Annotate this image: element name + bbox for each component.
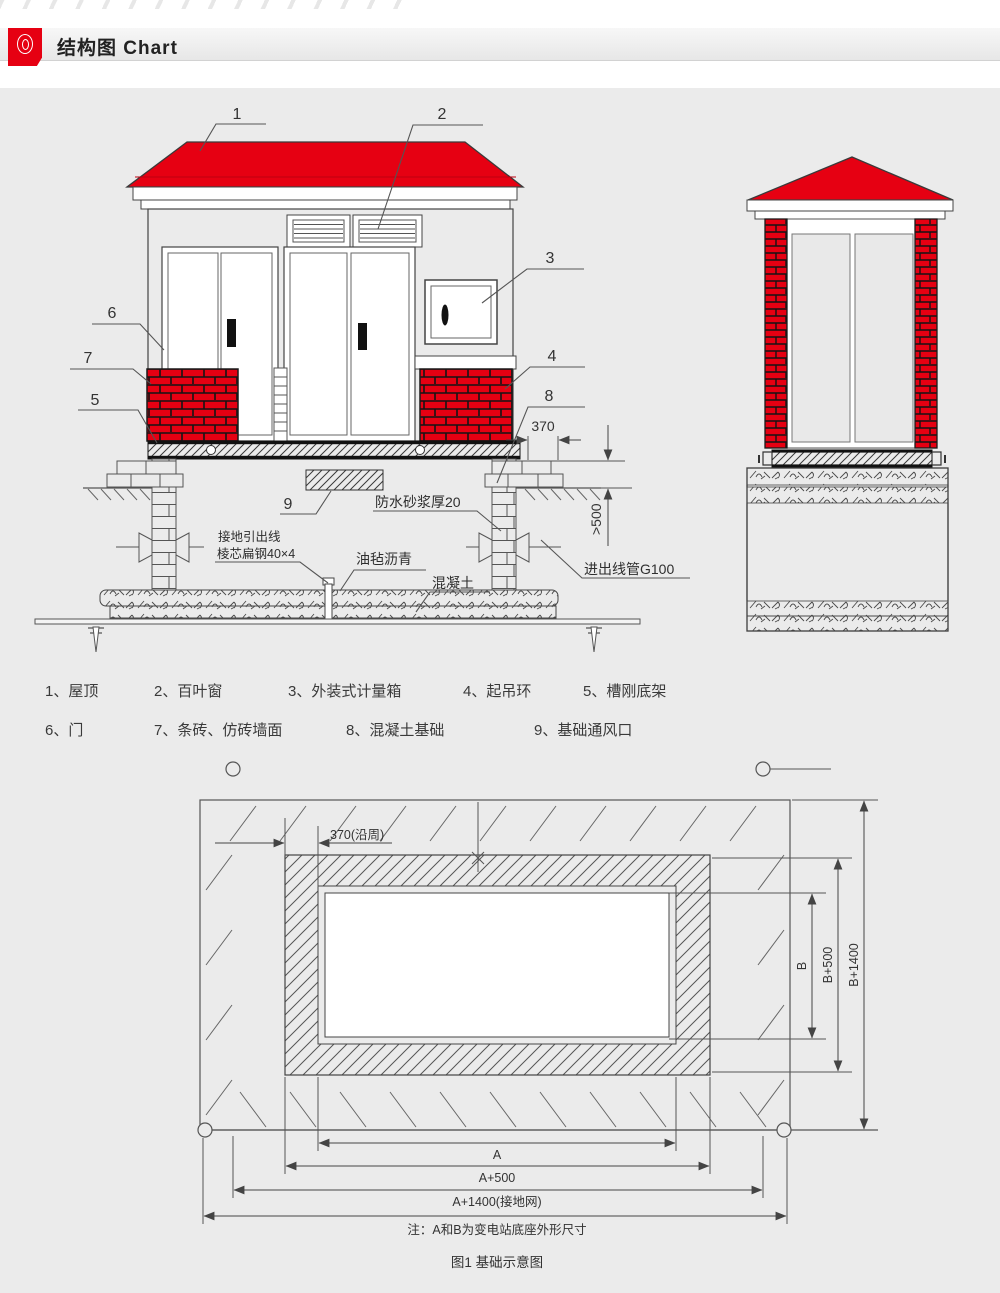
brick-panel-left bbox=[147, 369, 238, 441]
brick-column-left bbox=[765, 219, 787, 448]
svg-text:B+1400: B+1400 bbox=[847, 943, 861, 986]
earth-rod-right bbox=[586, 627, 602, 652]
dim-a500: A+500 bbox=[285, 1077, 710, 1185]
svg-text:A+1400(接地网): A+1400(接地网) bbox=[452, 1194, 541, 1209]
label-conduit: 进出线管G100 bbox=[584, 561, 674, 577]
foundation-vent bbox=[306, 470, 383, 490]
legend: 1、屋顶 2、百叶窗 3、外装式计量箱 4、起吊环 5、槽刚底架 6、门 7、条… bbox=[45, 682, 666, 739]
side-roof bbox=[748, 157, 953, 200]
dim-b500: B+500 bbox=[712, 858, 852, 1072]
callout-8: 8 bbox=[545, 388, 554, 405]
roof bbox=[127, 142, 523, 187]
window-sill bbox=[415, 356, 516, 369]
page: 结构图 Chart bbox=[0, 0, 1000, 1293]
side-panel bbox=[855, 234, 913, 442]
callout-6: 6 bbox=[108, 305, 117, 322]
grounding-strip bbox=[323, 578, 334, 622]
legend-item: 3、外装式计量箱 bbox=[288, 683, 401, 700]
earth-electrode bbox=[198, 1123, 212, 1137]
side-panel bbox=[792, 234, 850, 442]
callout-5: 5 bbox=[91, 392, 100, 409]
legend-item: 2、百叶窗 bbox=[154, 682, 222, 700]
figure-caption: 图1 基础示意图 bbox=[451, 1254, 543, 1270]
ground-bar bbox=[35, 619, 640, 624]
lifting-ring bbox=[207, 446, 216, 455]
callout-3: 3 bbox=[546, 250, 555, 267]
base-outline bbox=[325, 893, 669, 1037]
door-middle bbox=[284, 247, 415, 441]
svg-text:B+500: B+500 bbox=[821, 947, 835, 984]
dim-a: A bbox=[318, 1077, 676, 1162]
side-elevation bbox=[747, 157, 953, 631]
earth-rod-left bbox=[88, 627, 104, 652]
footing-right bbox=[485, 461, 563, 487]
label-grounding-1: 接地引出线 bbox=[218, 529, 281, 544]
callout-1: 1 bbox=[233, 106, 242, 123]
svg-text:B: B bbox=[795, 962, 809, 970]
legend-item: 6、门 bbox=[45, 722, 83, 739]
callout-4: 4 bbox=[548, 348, 557, 365]
door-handle bbox=[358, 323, 367, 350]
door-handle bbox=[227, 319, 236, 347]
svg-text:370(沿周): 370(沿周) bbox=[330, 828, 384, 842]
brick-column-right bbox=[915, 219, 937, 448]
earth-electrode bbox=[226, 762, 240, 776]
vent-strip bbox=[274, 368, 287, 441]
svg-text:A+500: A+500 bbox=[479, 1171, 516, 1185]
label-waterproof: 防水砂浆厚20 bbox=[375, 494, 461, 510]
label-grounding-2: 棱芯扁钢40×4 bbox=[217, 546, 295, 561]
svg-text:370: 370 bbox=[531, 418, 555, 434]
legend-item: 4、起吊环 bbox=[463, 683, 531, 700]
svg-text:>500: >500 bbox=[588, 503, 604, 535]
side-base-frame bbox=[759, 450, 945, 467]
label-concrete: 混凝土 bbox=[432, 575, 474, 591]
callout-7: 7 bbox=[84, 350, 93, 367]
structure-drawing: 370 >500 bbox=[0, 0, 1000, 1293]
callout-2: 2 bbox=[438, 106, 447, 123]
earth-electrode bbox=[756, 762, 770, 776]
footing-left bbox=[107, 461, 183, 487]
brick-panel-right bbox=[420, 369, 512, 441]
front-elevation: 370 >500 bbox=[35, 106, 690, 652]
legend-item: 9、基础通风口 bbox=[534, 722, 632, 739]
lifting-ring bbox=[416, 446, 425, 455]
side-foundation bbox=[747, 468, 948, 631]
roof-fascia bbox=[133, 187, 517, 200]
base-frame bbox=[148, 441, 520, 459]
legend-item: 1、屋顶 bbox=[45, 683, 98, 700]
label-asphalt: 油毡沥青 bbox=[356, 551, 412, 567]
legend-item: 5、槽刚底架 bbox=[583, 683, 666, 700]
louver-window bbox=[287, 215, 422, 247]
metering-box bbox=[425, 280, 497, 344]
plan-note: 注：A和B为变电站底座外形尺寸 bbox=[407, 1222, 586, 1237]
legend-item: 7、条砖、仿砖墙面 bbox=[154, 722, 282, 739]
svg-text:A: A bbox=[493, 1148, 502, 1162]
legend-item: 8、混凝土基础 bbox=[346, 722, 444, 739]
earth-electrode bbox=[777, 1123, 791, 1137]
callout-9: 9 bbox=[284, 496, 293, 513]
foundation-plan: 370(沿周) B B+500 B+1400 A bbox=[198, 762, 878, 1270]
